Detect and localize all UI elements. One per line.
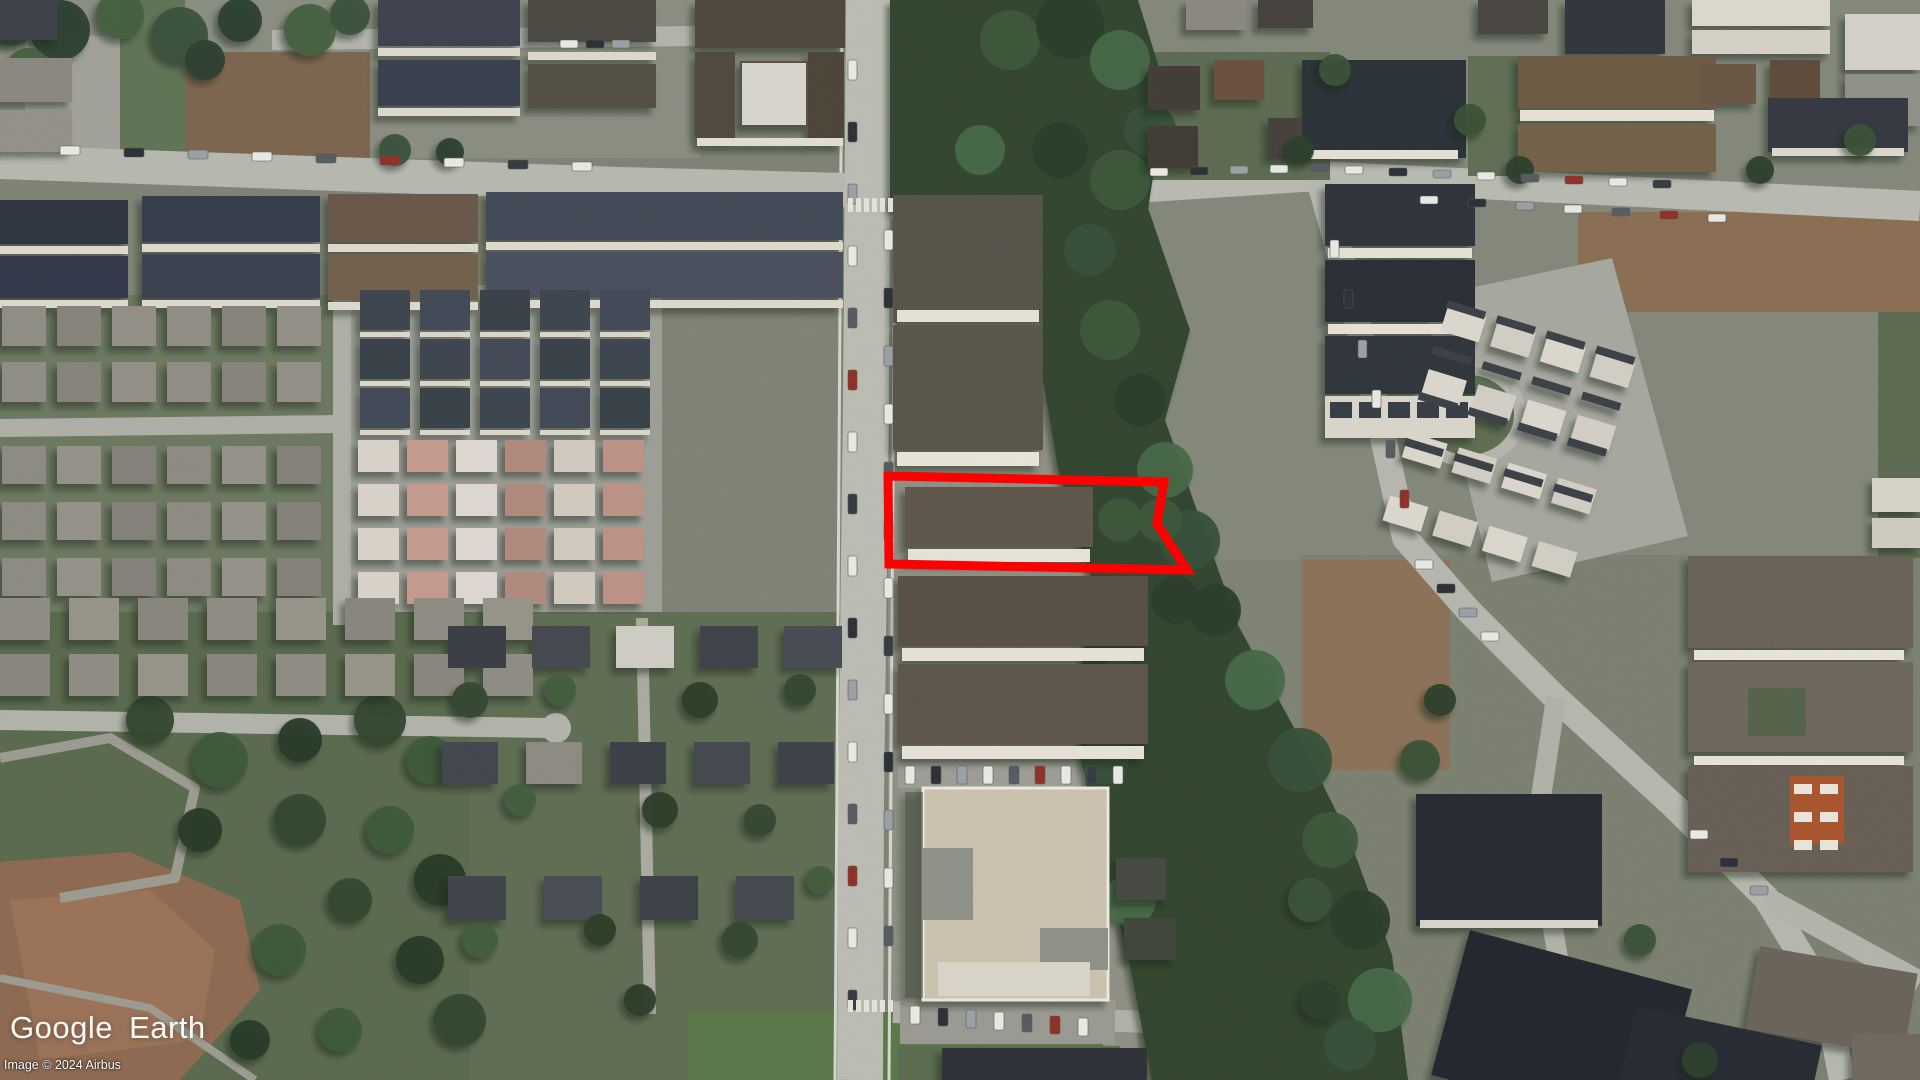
imagery-grain: [0, 0, 1920, 1080]
aerial-imagery[interactable]: [0, 0, 1920, 1080]
google-earth-viewport[interactable]: Google Earth Image © 2024 Airbus: [0, 0, 1920, 1080]
imagery-attribution: Image © 2024 Airbus: [4, 1058, 121, 1072]
google-earth-logo: Google Earth: [10, 1010, 206, 1046]
